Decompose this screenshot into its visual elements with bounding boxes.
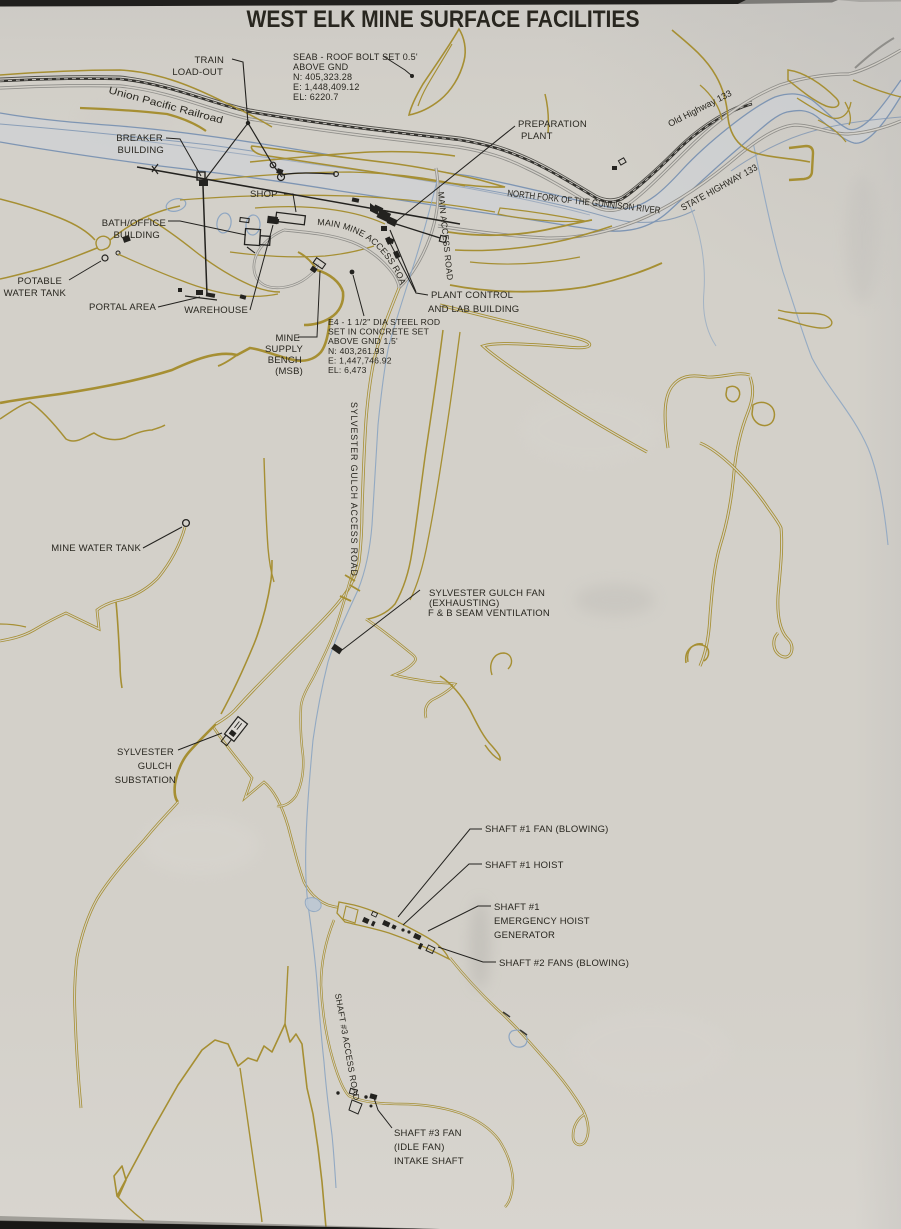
svg-text:MINE WATER TANK: MINE WATER TANK <box>51 543 141 554</box>
svg-text:PORTAL AREA: PORTAL AREA <box>89 302 156 313</box>
svg-text:BREAKER: BREAKER <box>116 133 163 144</box>
svg-text:WATER TANK: WATER TANK <box>4 288 67 299</box>
svg-text:N: 403,261.93: N: 403,261.93 <box>328 346 385 356</box>
svg-text:EMERGENCY HOIST: EMERGENCY HOIST <box>494 916 590 927</box>
svg-text:INTAKE SHAFT: INTAKE SHAFT <box>394 1156 464 1167</box>
svg-text:SHAFT #3 FAN: SHAFT #3 FAN <box>394 1128 462 1139</box>
svg-text:SHAFT #1 FAN (BLOWING): SHAFT #1 FAN (BLOWING) <box>485 824 609 835</box>
svg-text:GENERATOR: GENERATOR <box>494 930 555 941</box>
svg-text:SYLVESTER: SYLVESTER <box>117 747 174 758</box>
svg-text:E: 1,447,746.92: E: 1,447,746.92 <box>328 355 392 365</box>
svg-text:AND LAB BUILDING: AND LAB BUILDING <box>428 304 519 315</box>
svg-text:BATH/OFFICE: BATH/OFFICE <box>102 218 166 229</box>
svg-text:ABOVE GND 1.5': ABOVE GND 1.5' <box>328 336 398 346</box>
svg-text:N: 405,323.28: N: 405,323.28 <box>293 72 352 82</box>
svg-text:SUPPLY: SUPPLY <box>265 344 303 355</box>
svg-text:SET IN CONCRETE SET: SET IN CONCRETE SET <box>328 327 430 337</box>
svg-text:PLANT: PLANT <box>521 131 553 142</box>
svg-text:PREPARATION: PREPARATION <box>518 119 587 130</box>
svg-text:(IDLE FAN): (IDLE FAN) <box>394 1142 445 1153</box>
svg-text:(MSB): (MSB) <box>275 366 303 377</box>
svg-text:SHAFT #1 HOIST: SHAFT #1 HOIST <box>485 860 564 871</box>
svg-text:SUBSTATION: SUBSTATION <box>115 775 176 786</box>
svg-text:MINE: MINE <box>275 333 300 344</box>
svg-text:LOAD-OUT: LOAD-OUT <box>172 67 223 78</box>
svg-text:WEST ELK MINE SURFACE FACILITI: WEST ELK MINE SURFACE FACILITIES <box>247 6 640 33</box>
svg-text:E: 1,448,409.12: E: 1,448,409.12 <box>293 82 360 92</box>
svg-text:GULCH: GULCH <box>138 761 172 772</box>
svg-text:EL: 6,473: EL: 6,473 <box>328 365 367 375</box>
svg-text:BUILDING: BUILDING <box>114 230 160 241</box>
svg-text:ABOVE GND: ABOVE GND <box>293 62 349 72</box>
svg-text:BUILDING: BUILDING <box>118 145 164 156</box>
svg-text:SEAB - ROOF BOLT SET 0.5': SEAB - ROOF BOLT SET 0.5' <box>293 52 418 62</box>
svg-text:SHAFT #2 FANS (BLOWING): SHAFT #2 FANS (BLOWING) <box>499 958 629 969</box>
svg-text:WAREHOUSE: WAREHOUSE <box>184 305 248 316</box>
svg-text:TRAIN: TRAIN <box>195 55 225 66</box>
svg-text:F & B SEAM VENTILATION: F & B SEAM VENTILATION <box>428 608 550 619</box>
svg-text:EL: 6220.7: EL: 6220.7 <box>293 92 339 102</box>
svg-text:BENCH: BENCH <box>268 355 302 366</box>
svg-text:E4 - 1 1/2" DIA STEEL ROD: E4 - 1 1/2" DIA STEEL ROD <box>328 317 440 327</box>
svg-text:SYLVESTER GULCH ACCESS ROAD: SYLVESTER GULCH ACCESS ROAD <box>349 402 359 577</box>
svg-text:SHOP: SHOP <box>250 189 278 200</box>
svg-text:PLANT CONTROL: PLANT CONTROL <box>431 290 513 301</box>
svg-text:SHAFT #1: SHAFT #1 <box>494 902 540 913</box>
svg-text:POTABLE: POTABLE <box>17 276 62 287</box>
